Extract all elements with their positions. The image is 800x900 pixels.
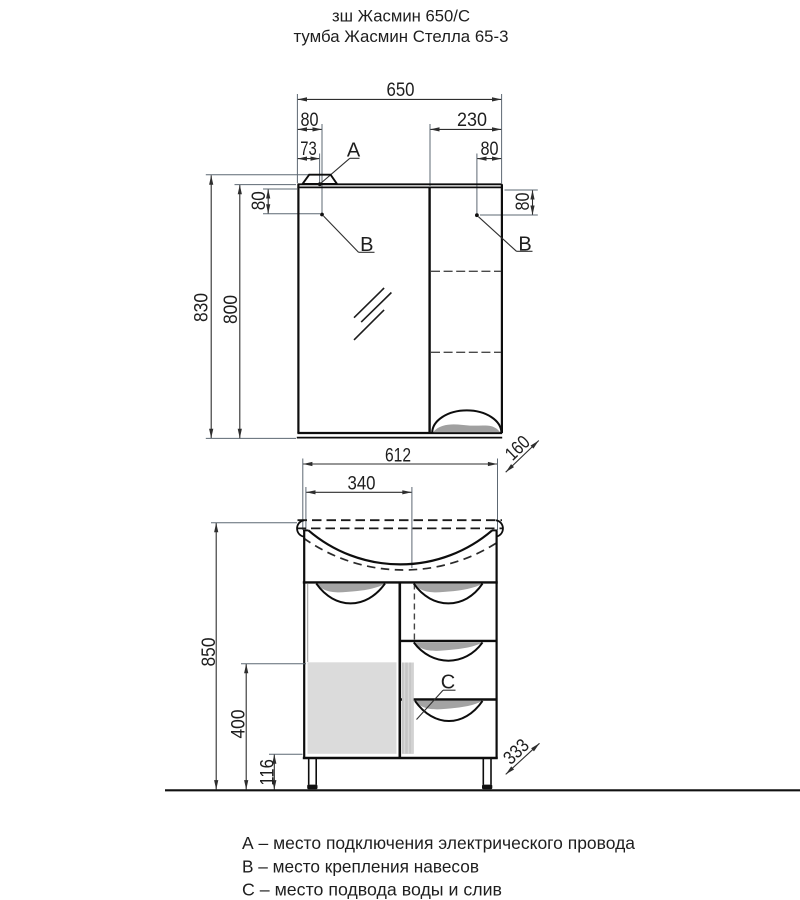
- svg-text:80: 80: [301, 110, 319, 131]
- svg-text:B: B: [360, 234, 373, 256]
- svg-text:230: 230: [457, 110, 487, 131]
- svg-text:612: 612: [385, 445, 411, 466]
- svg-text:116: 116: [258, 759, 279, 786]
- svg-text:650: 650: [387, 80, 415, 101]
- svg-text:80: 80: [249, 191, 270, 210]
- svg-text:А – место подключения электрич: А – место подключения электрического про…: [242, 833, 635, 853]
- svg-text:80: 80: [513, 193, 534, 211]
- svg-text:80: 80: [481, 139, 499, 160]
- svg-text:800: 800: [221, 295, 242, 324]
- svg-text:зш Жасмин 650/С: зш Жасмин 650/С: [332, 7, 470, 26]
- svg-text:850: 850: [199, 638, 220, 667]
- svg-text:73: 73: [300, 139, 317, 160]
- svg-text:830: 830: [192, 293, 213, 322]
- svg-text:340: 340: [348, 473, 376, 494]
- svg-text:B: B: [518, 233, 531, 255]
- svg-text:В – место крепления навесов: В – место крепления навесов: [242, 857, 479, 877]
- svg-text:400: 400: [229, 710, 250, 739]
- svg-text:тумба Жасмин Стелла 65-3: тумба Жасмин Стелла 65-3: [294, 27, 509, 46]
- svg-text:С – место подвода воды и слив: С – место подвода воды и слив: [242, 879, 502, 899]
